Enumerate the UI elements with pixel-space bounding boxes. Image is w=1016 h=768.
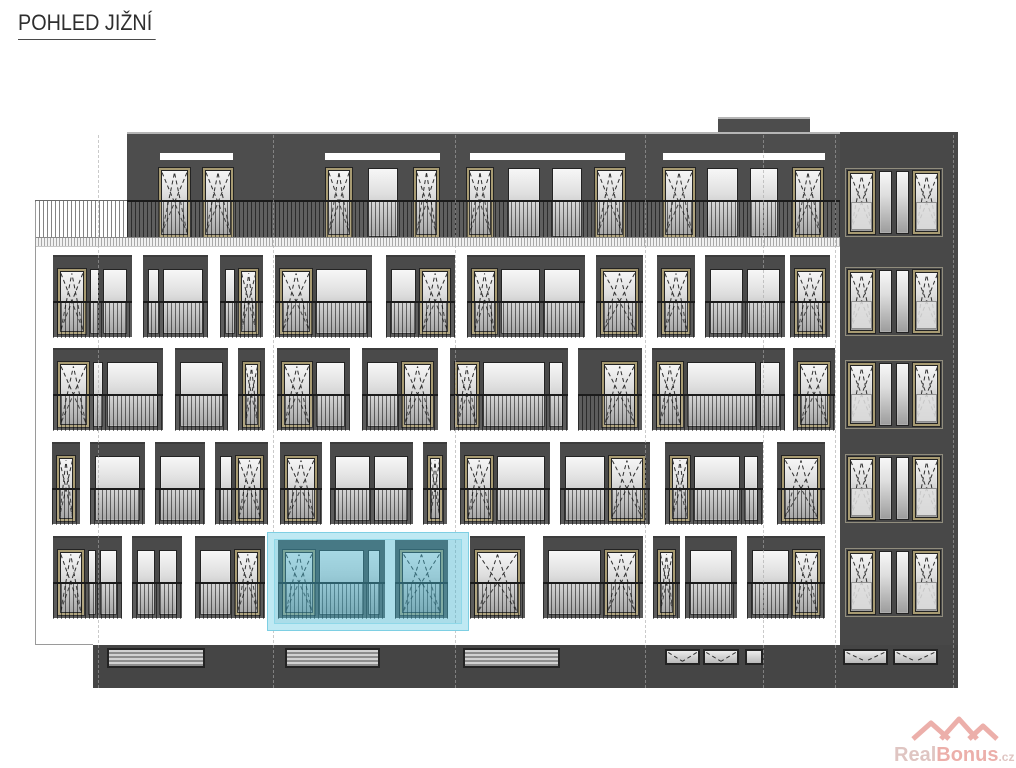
door-window [467,168,493,237]
narrow-pane [90,269,99,334]
tower-door-window [848,551,875,614]
facade-bay [652,348,785,430]
door-window [662,269,690,334]
door-window [455,362,479,427]
tower-door-window [913,457,940,520]
facade-bay [52,442,80,524]
door-window [58,550,84,615]
facade-bay [657,255,695,337]
door-window [57,456,75,521]
watermark-bonus: Bonus [936,744,998,766]
narrow-door-window [670,456,690,521]
narrow-door-window [657,362,683,427]
fixed-window [548,550,601,615]
watermark-real: Real [894,744,936,766]
facade-bay [215,442,268,524]
door-window [798,362,830,427]
narrow-pane [88,550,96,615]
fixed-window [367,362,398,427]
fixed-window [335,456,370,521]
door-window [793,550,820,615]
narrow-pane [879,551,892,614]
facade-bay [362,348,438,430]
glass-balustrade [851,582,872,611]
fixed-window [752,550,789,615]
fixed-window [707,168,738,237]
fixed-window [316,362,345,427]
door-window [595,168,625,237]
highlighted-unit[interactable] [268,533,468,630]
fixed-window [225,269,235,334]
glass-balustrade [851,488,872,517]
narrow-pane [549,362,563,427]
narrow-pane [896,551,909,614]
door-window [420,269,450,334]
door-window [782,456,820,521]
fixed-window [508,168,540,237]
facade-bay [90,442,145,524]
basement-window [703,649,739,665]
facade-bay [238,348,265,430]
fixed-window [180,362,223,427]
facade-bay [280,442,322,524]
facade-bay [275,255,372,337]
fixed-window [368,168,398,237]
facade-bay [195,536,265,618]
door-window [475,550,520,615]
tower-door-window [913,171,940,234]
roof-light-slot [160,153,233,160]
railing-base [35,237,840,247]
door-window [285,456,317,521]
facade-bay [143,255,208,337]
facade-bay [175,348,228,430]
basement-window [665,649,700,665]
facade-bay [793,348,835,430]
fixed-window [690,550,732,615]
door-window [795,269,825,334]
fixed-window [501,269,539,334]
fixed-window [103,269,127,334]
door-window [282,362,312,427]
door-window [326,168,352,237]
narrow-door-window [658,550,675,615]
narrow-pane [760,362,780,427]
tower-window-group [845,267,943,336]
facade-bay [460,442,550,524]
narrow-pane [879,171,892,234]
tower-door-window [913,270,940,333]
fixed-window [100,550,117,615]
narrow-pane [879,270,892,333]
facade-bay [53,536,122,618]
door-window [609,456,645,521]
door-window [58,362,89,427]
tower-door-window [848,457,875,520]
fixed-window [137,550,155,615]
fixed-window [552,168,582,237]
tower-door-window [848,363,875,426]
facade-bay [685,536,737,618]
fixed-window [316,269,367,334]
fixed-window [107,362,158,427]
door-window [602,362,637,427]
fixed-window [710,269,743,334]
facade-bay [155,442,205,524]
tower-door-window [848,171,875,234]
terrace-railing [35,200,127,238]
facade-bay [220,255,263,337]
fixed-window [544,269,581,334]
tower-window-group [845,168,943,237]
glass-balustrade [851,301,872,330]
facade-bay [705,255,785,337]
door-window [239,269,258,334]
facade-bay [653,536,680,618]
tower-window-group [845,454,943,523]
narrow-pane [896,171,909,234]
facade-bay [543,536,643,618]
facade-bay [386,255,455,337]
wall-spacer [583,362,598,427]
tower-window-group [845,548,943,617]
door-window [414,168,439,237]
glass-balustrade [916,301,937,330]
fixed-window [565,456,605,521]
facade-bay [578,348,642,430]
vent-grille [285,648,380,668]
door-window [428,456,442,521]
glass-balustrade [916,488,937,517]
elevation-sheet: POHLED JIŽNÍ RealBonus.cz [0,0,1016,768]
watermark-tld: .cz [998,750,1014,764]
door-window [243,362,260,427]
fixed-window [374,456,409,521]
door-window [793,168,823,237]
fixed-window [497,456,545,521]
tower-door-window [913,363,940,426]
door-window [203,168,233,237]
facade-bay [53,348,163,430]
fixed-window [163,269,203,334]
door-window [605,550,638,615]
vent-grille [107,648,205,668]
door-window [472,269,497,334]
glass-balustrade [851,394,872,423]
roof-light-slot [663,153,825,160]
narrow-pane [896,457,909,520]
narrow-pane [896,270,909,333]
door-window [235,550,260,615]
facade-bay [470,536,525,618]
facade-bay [450,348,568,430]
roof-light-slot [325,153,440,160]
glass-balustrade [851,202,872,231]
facade-bay [596,255,643,337]
vent-grille [463,648,560,668]
watermark-text: RealBonus.cz [894,746,1012,766]
door-window [159,168,190,237]
tower-door-window [913,551,940,614]
tower-door-window [848,270,875,333]
glass-balustrade [916,582,937,611]
watermark: RealBonus.cz [894,715,1012,766]
fixed-window [160,456,200,521]
fixed-window [95,456,140,521]
building-elevation [0,0,1016,768]
facade-bay [132,536,182,618]
facade-bay [665,442,763,524]
facade-edge-line [35,644,93,645]
fixed-window [750,168,778,237]
facade-bay [777,442,825,524]
door-window [58,269,86,334]
facade-bay [277,348,350,430]
fixed-window [200,550,231,615]
narrow-pane [879,363,892,426]
door-window [280,269,312,334]
door-window [236,456,263,521]
tower-window-group [845,360,943,429]
door-window [402,362,433,427]
narrow-pane [148,269,159,334]
glass-balustrade [916,394,937,423]
narrow-pane [744,456,758,521]
top-floor-band [127,132,958,243]
fixed-window [747,269,780,334]
roof-light-slot [470,153,625,160]
basement-window [893,649,938,665]
facade-bay [53,255,132,337]
fixed-window [391,269,416,334]
fixed-window [159,550,177,615]
facade-bay [467,255,585,337]
realbonus-roof-icon [907,715,999,741]
narrow-pane [879,457,892,520]
facade-edge-line [35,202,36,645]
facade-bay [330,442,413,524]
door-window [663,168,695,237]
glass-balustrade [916,202,937,231]
fixed-window [483,362,546,427]
facade-bay [747,536,825,618]
door-window [465,456,493,521]
fixed-window [694,456,740,521]
narrow-pane [93,362,103,427]
facade-bay [423,442,447,524]
basement-square-window [745,649,763,665]
fixed-window [687,362,757,427]
door-window [601,269,638,334]
narrow-pane [896,363,909,426]
facade-bay [560,442,650,524]
basement-window [843,649,888,665]
fixed-window [220,456,232,521]
facade-bay [790,255,830,337]
